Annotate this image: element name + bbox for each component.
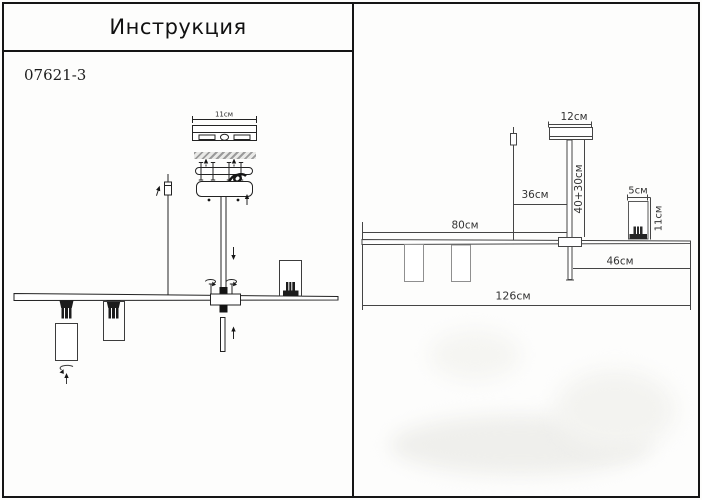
light-bar-right <box>362 240 691 245</box>
up-arrow-icon <box>204 159 208 164</box>
rotate-arrow-icon <box>60 365 73 369</box>
dim-cable-length: 36см <box>514 189 568 205</box>
cable-hanger <box>154 174 171 296</box>
suspension-rod <box>221 197 236 288</box>
dim-label-80: 80см <box>451 220 478 232</box>
dim-label-plate-width: 11см <box>215 111 233 119</box>
socket-2 <box>107 301 121 319</box>
dim-rod-length: 40+30см <box>573 140 585 237</box>
hanging-shade-1 <box>405 245 424 282</box>
rod-right <box>567 140 572 238</box>
panel-divider <box>352 4 354 496</box>
dim-spot-width: 5см <box>628 186 651 201</box>
hanging-shade-2 <box>452 245 471 282</box>
dim-right-section: 46см <box>573 256 691 269</box>
dim-label-11: 11см <box>654 206 665 232</box>
connector-right <box>559 238 582 281</box>
assembly-diagram: 11см <box>0 0 352 500</box>
rotate-arrow-icon <box>206 280 216 284</box>
center-connector <box>206 280 241 352</box>
ceiling-hatch <box>194 152 256 159</box>
instruction-sheet: { "header": { "title": "Инструкция", "mo… <box>0 0 702 500</box>
canopy-right <box>550 128 593 140</box>
plate-top-view: 11см <box>193 111 257 141</box>
small-shade <box>629 202 649 240</box>
shade-detached <box>56 324 78 385</box>
dim-total-width: 126см <box>363 290 691 306</box>
socket-1 <box>60 301 74 319</box>
dim-label-canopy: 12см <box>560 111 587 123</box>
down-arrow-icon <box>231 255 235 260</box>
dim-label-cable: 36см <box>521 189 548 201</box>
dim-canopy-width: 12см <box>549 111 592 128</box>
up-arrow-icon <box>64 373 68 378</box>
dim-label-rod: 40+30см <box>573 164 585 213</box>
dimensions-diagram: 12см 40+30см 36см 80см <box>355 0 702 500</box>
up-arrow-icon <box>231 327 235 332</box>
upward-shade <box>280 261 302 297</box>
rotate-arrow-icon <box>227 280 237 284</box>
dim-spot-height: 11см <box>651 198 665 240</box>
up-arrow-icon <box>154 185 161 196</box>
cable-right <box>511 127 517 240</box>
dim-label-126: 126см <box>495 290 530 303</box>
mounting-bracket <box>196 159 253 181</box>
dim-label-5: 5см <box>628 186 647 197</box>
dim-label-46: 46см <box>606 256 633 268</box>
up-arrow-icon <box>232 159 236 164</box>
